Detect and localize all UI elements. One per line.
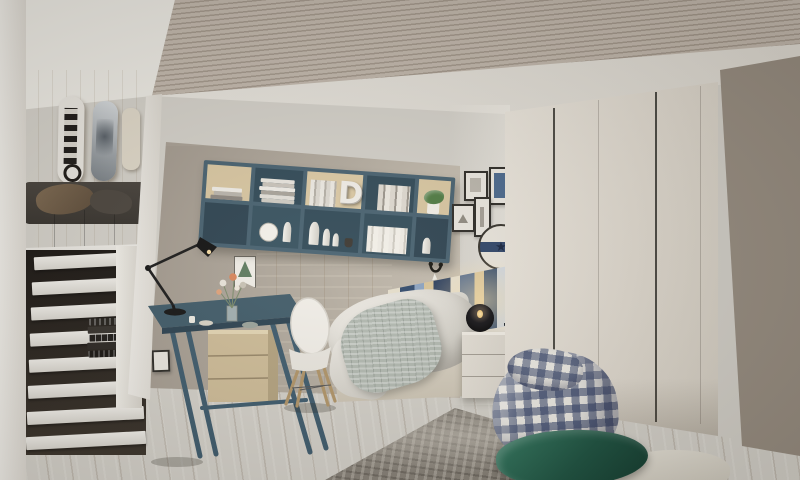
bed-base <box>330 330 470 402</box>
chair <box>151 296 336 467</box>
bed-headboard <box>388 264 508 346</box>
picture-frame-3 <box>452 204 475 232</box>
wood-headboard-panel <box>252 222 392 398</box>
mosaic-wallpaper-right <box>716 56 800 456</box>
skateboard-1 <box>57 96 85 184</box>
stacked-books <box>261 178 295 184</box>
wall-clock: ★ <box>478 224 524 270</box>
small-leaning-frame <box>152 350 171 373</box>
desk-top <box>148 294 304 334</box>
desk-legs <box>172 320 326 456</box>
bed-duvet <box>323 282 483 386</box>
desk-mug <box>189 316 195 323</box>
left-wall-column <box>0 0 26 480</box>
frame-4-art <box>480 207 484 227</box>
ceiling-left-white <box>0 0 200 120</box>
skateboard-2 <box>91 101 119 182</box>
duvet-drape-corner <box>326 332 397 403</box>
plant-leaves <box>424 189 445 204</box>
corner-column <box>120 90 180 400</box>
shelf-cell <box>305 171 363 209</box>
wardrobe-groove-handle <box>655 92 657 422</box>
sailboat-model <box>504 300 530 330</box>
wall-shelf: D <box>198 160 455 263</box>
ceiling-cove <box>0 0 800 130</box>
drawer-handle-slot <box>518 362 521 374</box>
stair-step-4 <box>30 328 135 346</box>
shelf-cell <box>417 179 451 215</box>
upright-books <box>377 184 411 212</box>
wardrobe-door-seam <box>598 100 599 422</box>
sofa-brown-pillow <box>34 180 96 219</box>
stair-step-5 <box>29 354 139 373</box>
sail-2 <box>517 304 526 322</box>
stair-side-fascia <box>116 246 142 408</box>
small-dark-cup <box>344 238 353 248</box>
desk-nook-group <box>120 230 360 470</box>
wardrobe <box>505 78 718 438</box>
sail-1 <box>506 300 516 322</box>
drawer-seam <box>462 354 542 355</box>
knit-throw <box>332 292 449 400</box>
lamp-flame <box>477 310 483 318</box>
shelf-cell <box>253 168 303 205</box>
chair-seat <box>289 347 331 371</box>
loft-wood-wall <box>24 70 146 250</box>
frame-1-art <box>470 178 481 192</box>
frames-wall-highlight <box>448 105 510 405</box>
skateboard-1-graphic <box>64 108 78 164</box>
desk-bowl-green <box>242 322 258 328</box>
nightstand-top-edge <box>462 332 542 335</box>
decor-letter: D <box>337 175 364 212</box>
nightstand <box>462 332 542 398</box>
shelf-cell <box>414 217 449 259</box>
loft-sofa <box>24 182 146 250</box>
stair-books <box>85 317 134 359</box>
picture-frame-1 <box>464 171 488 201</box>
lamp-head <box>196 237 217 257</box>
pennant-banner <box>234 256 256 288</box>
stacked-books <box>212 187 242 193</box>
desk-drawer-unit <box>208 330 278 402</box>
sofa-dark-pillow <box>89 188 133 216</box>
stair-step-2 <box>32 278 127 296</box>
wardrobe-groove-handle <box>553 108 555 418</box>
small-vase <box>422 237 431 254</box>
rug <box>200 400 680 480</box>
shelf-cell <box>365 175 415 212</box>
picture-frame-4 <box>474 197 491 237</box>
upright-books <box>309 180 337 208</box>
bedroom-scene: D ★ <box>0 0 800 480</box>
desk-lamp <box>145 237 217 316</box>
shelf-cell <box>250 206 301 249</box>
skateboard-1-logo-circle <box>63 164 81 182</box>
headphones-icon <box>426 260 445 283</box>
shelf-cell <box>202 202 249 245</box>
bean-bag-shadow <box>486 436 632 466</box>
skateboard-2-art <box>95 119 114 164</box>
bed-pillow-1 <box>389 297 431 322</box>
stair-step-3 <box>31 302 131 320</box>
boat-hull <box>504 323 529 327</box>
drawer-seam <box>462 376 542 377</box>
lighting-overlay <box>0 0 800 480</box>
green-cushion <box>495 426 650 480</box>
flower-vase <box>216 273 246 321</box>
skateboard-3 <box>122 108 140 170</box>
mosaic-wallpaper-main <box>146 142 460 402</box>
ceiling-slat-panel <box>0 0 800 100</box>
wood-floor <box>0 370 800 480</box>
shelf-clock <box>258 222 278 242</box>
wardrobe-door-seam <box>700 86 701 424</box>
lamp-glow <box>424 258 540 342</box>
shelf-cell <box>362 213 413 256</box>
bean-bag-top-fold <box>506 347 584 393</box>
white-vase <box>282 222 291 243</box>
bean-bag <box>488 348 621 467</box>
white-vase <box>308 222 320 246</box>
stair-step-1 <box>34 253 123 271</box>
bed-pillow-2 <box>422 291 470 318</box>
clock-star: ★ <box>495 241 507 254</box>
shelf-cell <box>302 209 361 253</box>
white-book-row <box>366 226 408 255</box>
stair-step-6 <box>28 380 142 399</box>
sofa-backrest <box>24 182 146 224</box>
stair-step-7 <box>27 406 145 425</box>
frame-2-blue-art <box>494 173 506 198</box>
chair-backrest <box>288 296 333 356</box>
nightstand-lamp <box>466 304 494 332</box>
picture-frame-2 <box>489 167 512 205</box>
drawer-handle-slot <box>518 340 521 352</box>
white-bottle <box>322 229 330 246</box>
desk-bowl <box>199 320 213 326</box>
pennant-triangle-art <box>238 261 252 277</box>
white-bottle <box>332 233 339 246</box>
grey-cushion <box>607 448 730 480</box>
plant-pot <box>427 202 440 215</box>
frame-3-art <box>458 212 468 223</box>
stairs <box>24 250 146 455</box>
shelf-cell <box>205 164 251 201</box>
sofa-seat <box>24 210 146 250</box>
wardrobe-bottom-shadow <box>505 378 718 438</box>
loft-parapet <box>24 244 146 266</box>
stair-step-8 <box>26 431 147 450</box>
